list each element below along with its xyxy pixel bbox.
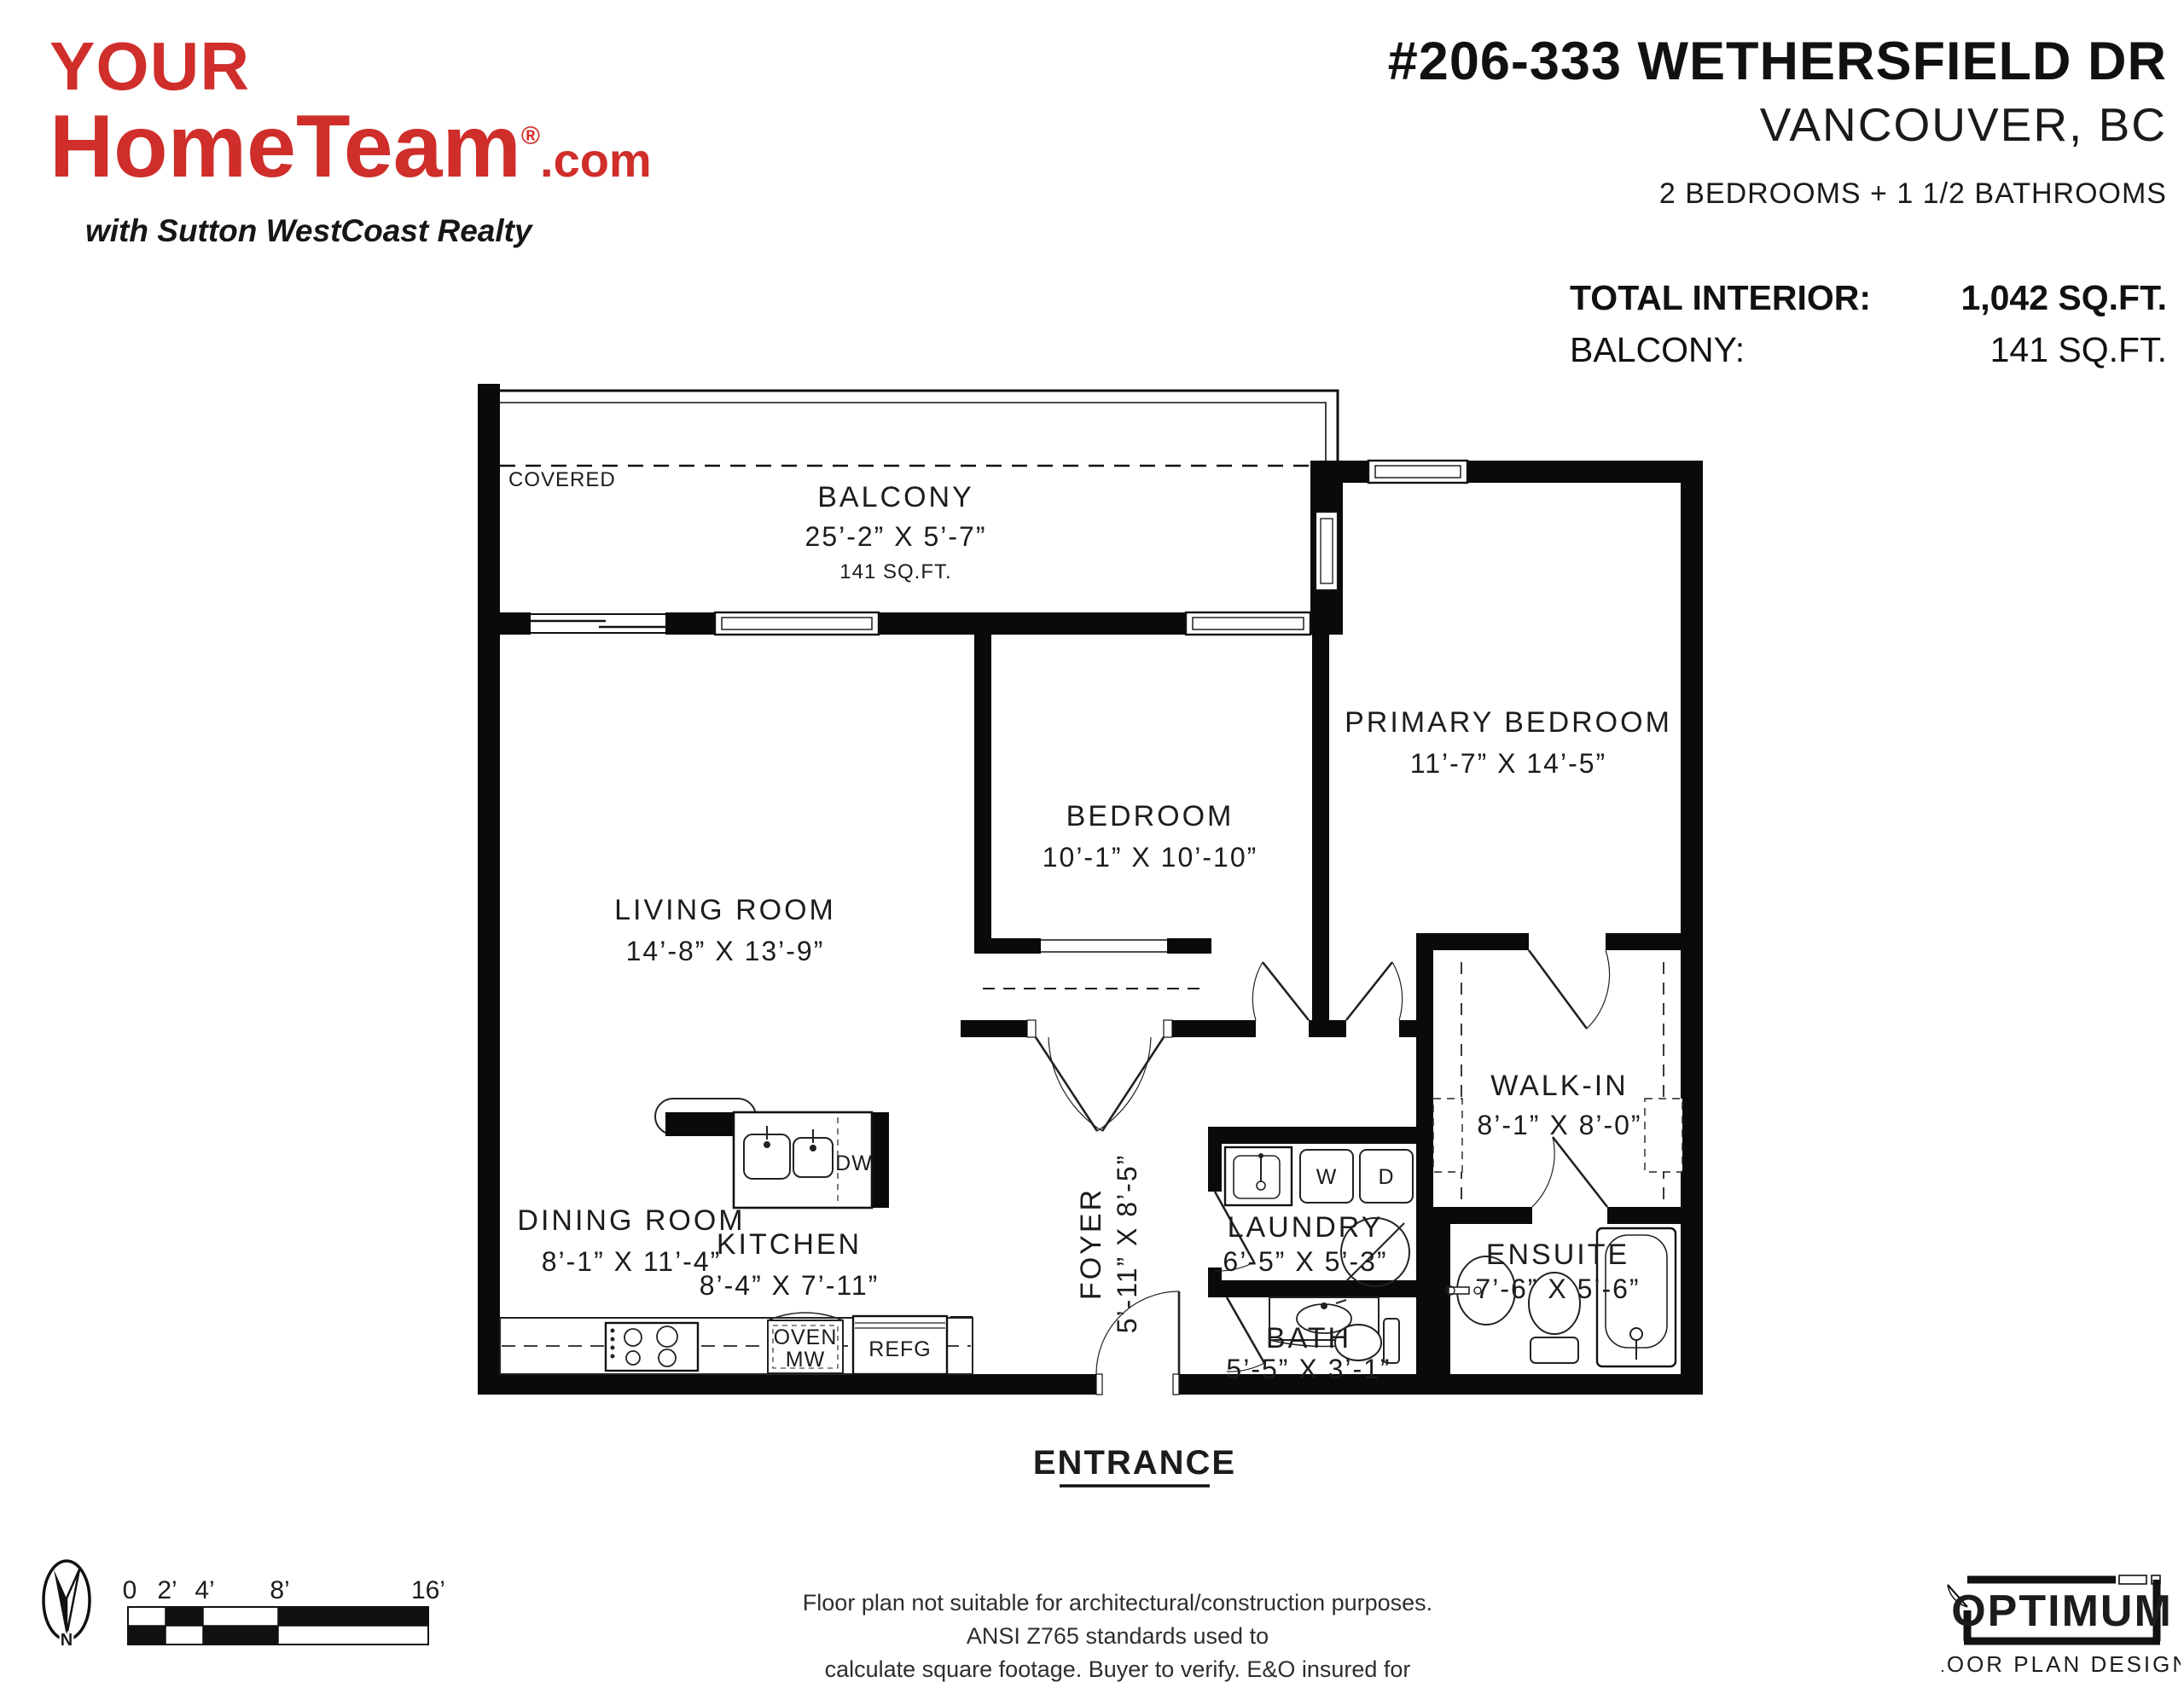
north-arrow: N xyxy=(39,1557,94,1648)
foyer-dims: 5’-11” X 8’-5” xyxy=(1112,1154,1142,1334)
ensuite-dims: 7’-6” X 5’-6” xyxy=(1475,1273,1640,1304)
listing-city: VANCOUVER, BC xyxy=(1388,97,2167,152)
bedroom-label: BEDROOM xyxy=(1066,800,1234,832)
walk-in-door xyxy=(1529,950,1610,1029)
bedroom-dims: 10’-1” X 10’-10” xyxy=(1043,842,1258,873)
registered-mark: ® xyxy=(521,122,540,150)
oven-label: OVEN xyxy=(774,1325,838,1349)
oven-microwave: OVEN MW xyxy=(768,1313,843,1373)
disclaimer-line1: Floor plan not suitable for architectura… xyxy=(776,1586,1459,1653)
brand-word: HomeTeam xyxy=(49,97,521,196)
north-needle-dark xyxy=(54,1569,67,1636)
window-living xyxy=(715,612,879,635)
living-room-dims: 14’-8” X 13’-9” xyxy=(626,936,825,966)
credit-name: OPTIMUM xyxy=(1951,1586,2173,1636)
entrance-label: ENTRANCE xyxy=(1033,1444,1236,1482)
covered-label: COVERED xyxy=(508,468,616,491)
stat-value: 141 SQ.FT. xyxy=(1990,330,2167,370)
double-door xyxy=(1027,1020,1172,1131)
credit-subtitle: FLOOR PLAN DESIGNS xyxy=(1942,1651,2181,1677)
room-label: BALCONY xyxy=(817,481,974,513)
dryer: D xyxy=(1360,1150,1413,1203)
living-room-label: LIVING ROOM xyxy=(614,894,836,926)
balcony-slider xyxy=(531,614,665,633)
brand-line1: YOUR xyxy=(49,32,652,101)
scale-tick: 4’ xyxy=(195,1576,214,1604)
microwave-label: MW xyxy=(786,1348,825,1372)
bath-label: BATH xyxy=(1266,1322,1351,1354)
primary-bedroom-dims: 11’-7” X 14’-5” xyxy=(1410,748,1606,779)
balcony-labels: BALCONY 25’-2” X 5’-7” 141 SQ.FT. xyxy=(805,481,987,583)
bedroom-door xyxy=(1252,962,1309,1020)
kitchen-peninsula: DW xyxy=(655,1099,873,1208)
listing-address: #206-333 WETHERSFIELD DR xyxy=(1388,31,2167,92)
dishwasher-label: DW xyxy=(835,1151,873,1175)
floor-plan-page: YOUR HomeTeam®.com with Sutton WestCoast… xyxy=(0,0,2184,1688)
ensuite-door xyxy=(1532,1137,1607,1207)
scale-bar: 0 2’ 4’ 8’ 16’ xyxy=(119,1576,444,1650)
window-bedroom xyxy=(1186,612,1310,635)
scale-tick-labels: 0 2’ 4’ 8’ 16’ xyxy=(123,1576,444,1604)
brand-tagline: with Sutton WestCoast Realty xyxy=(85,213,652,249)
room-dims: 25’-2” X 5’-7” xyxy=(805,521,987,552)
kitchen-label: KITCHEN xyxy=(717,1228,862,1261)
window-primary xyxy=(1368,461,1467,483)
walk-in-label: WALK-IN xyxy=(1490,1070,1628,1102)
washer: W xyxy=(1300,1150,1353,1203)
room-labels: LIVING ROOM 14’-8” X 13’-9” BEDROOM 10’-… xyxy=(517,706,1672,1384)
stat-total-interior: TOTAL INTERIOR: 1,042 SQ.FT. xyxy=(1570,278,2167,318)
disclaimer: Floor plan not suitable for architectura… xyxy=(776,1586,1459,1688)
foyer-label: FOYER xyxy=(1075,1187,1107,1300)
north-needle-light xyxy=(67,1569,79,1636)
laundry-dims: 6’-5” X 5’-3” xyxy=(1223,1246,1387,1277)
walk-in-dims: 8’-1” X 8’-0” xyxy=(1477,1110,1641,1140)
north-label: N xyxy=(61,1631,73,1648)
brand-logo: YOUR HomeTeam®.com with Sutton WestCoast… xyxy=(49,32,652,249)
credit-logo: OPTIMUM FLOOR PLAN DESIGNS xyxy=(1942,1566,2181,1685)
primary-bedroom-door xyxy=(1346,962,1403,1020)
fridge: REFG xyxy=(853,1316,947,1374)
brand-line2: HomeTeam®.com xyxy=(49,102,652,191)
stat-value: 1,042 SQ.FT. xyxy=(1960,278,2167,318)
primary-bedroom-label: PRIMARY BEDROOM xyxy=(1345,706,1672,739)
brand-suffix: .com xyxy=(540,133,652,187)
scale-tick: 16’ xyxy=(411,1576,444,1604)
entrance-callout: ENTRANCE xyxy=(1033,1444,1236,1486)
dining-room-dims: 8’-1” X 11’-4” xyxy=(542,1246,722,1277)
laundry-sink xyxy=(1225,1147,1292,1205)
scale-bar-segments xyxy=(128,1607,428,1644)
ensuite-label: ENSUITE xyxy=(1486,1238,1629,1271)
listing-header: #206-333 WETHERSFIELD DR VANCOUVER, BC 2… xyxy=(1388,31,2167,211)
cooktop xyxy=(606,1323,698,1371)
scale-tick: 2’ xyxy=(157,1576,177,1604)
floor-plan-drawing: COVERED BALCONY 25’-2” X 5’-7” 141 SQ.FT… xyxy=(452,365,1732,1499)
stat-label: BALCONY: xyxy=(1570,330,1745,370)
kitchen-dims: 8’-4” X 7’-11” xyxy=(700,1270,880,1301)
fridge-label: REFG xyxy=(868,1337,931,1361)
kitchen-counter: OVEN MW REFG xyxy=(500,1313,973,1374)
scale-tick: 8’ xyxy=(270,1576,289,1604)
bath-dims: 5’-5” X 3’-1” xyxy=(1226,1354,1391,1384)
disclaimer-line2: calculate square footage. Buyer to verif… xyxy=(776,1653,1459,1688)
stat-label: TOTAL INTERIOR: xyxy=(1570,278,1871,318)
stat-balcony: BALCONY: 141 SQ.FT. xyxy=(1570,330,2167,370)
laundry-label: LAUNDRY xyxy=(1228,1211,1384,1244)
room-area: 141 SQ.FT. xyxy=(839,560,951,583)
listing-config: 2 BEDROOMS + 1 1/2 BATHROOMS xyxy=(1388,177,2167,211)
scale-tick: 0 xyxy=(123,1576,137,1604)
dryer-label: D xyxy=(1378,1165,1394,1189)
dining-room-label: DINING ROOM xyxy=(517,1204,745,1237)
window-balcony-side xyxy=(1316,512,1338,590)
washer-label: W xyxy=(1316,1165,1338,1189)
